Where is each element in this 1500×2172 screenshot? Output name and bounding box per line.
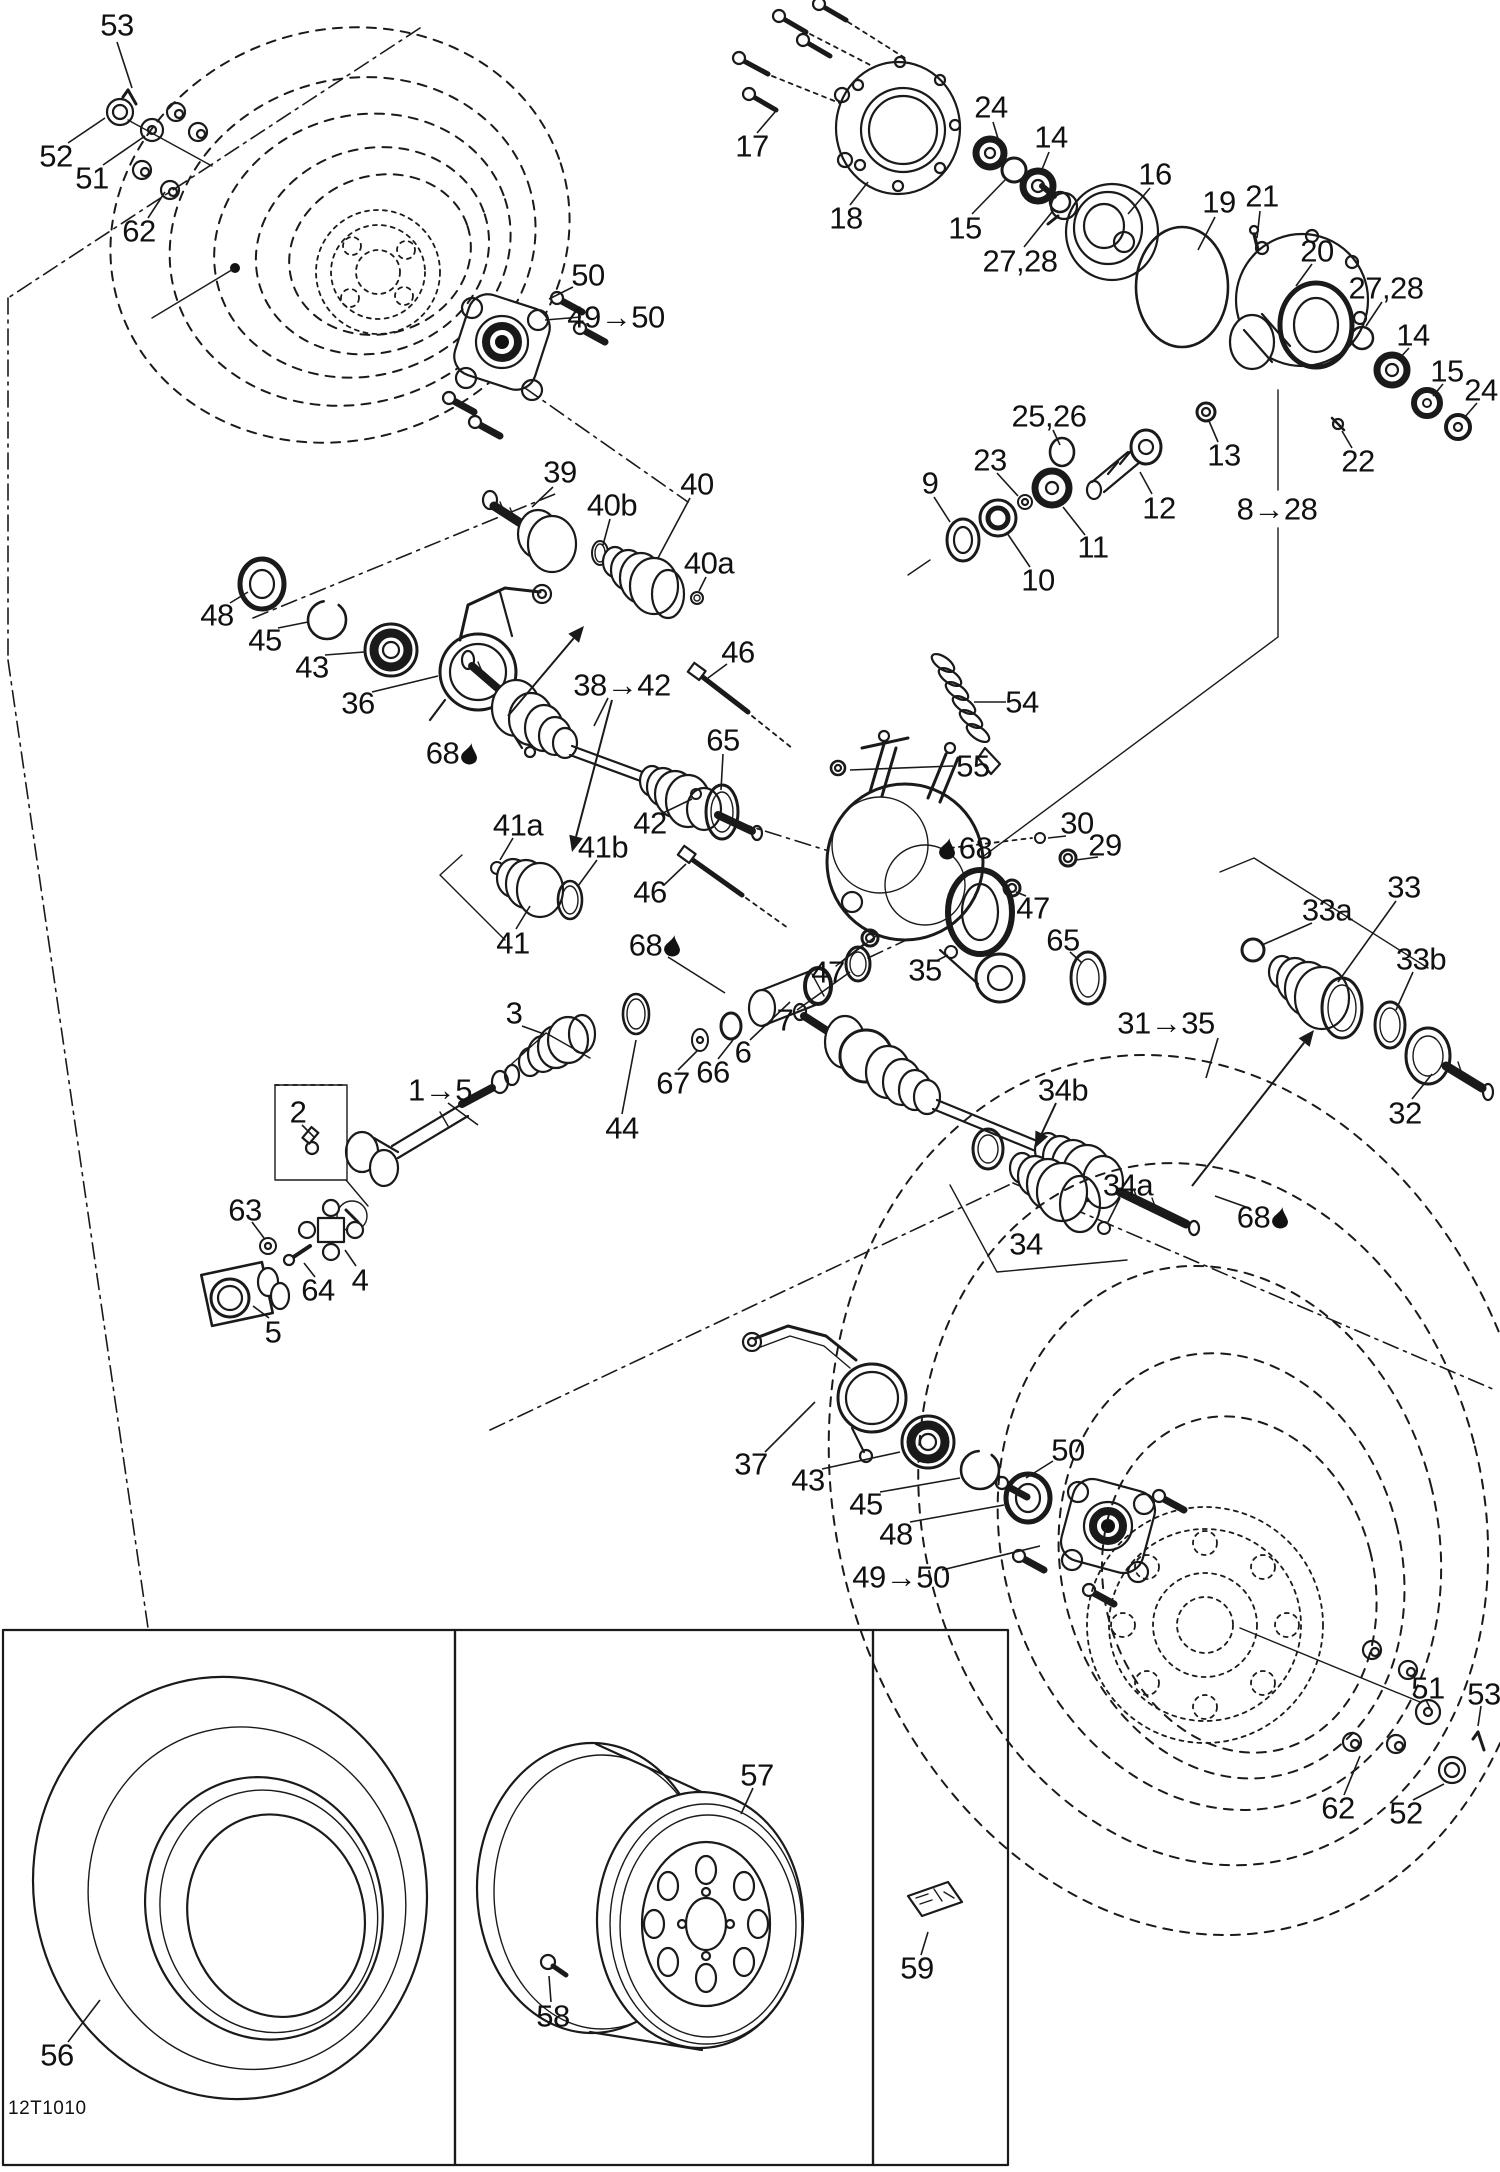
part-number-text: 52 [39, 141, 72, 172]
part-label-67: 67 [656, 1068, 689, 1099]
part-number-text: 40a [684, 548, 734, 579]
part-label-5: 5 [265, 1317, 282, 1348]
part-number-text: 43 [791, 1465, 824, 1496]
leader-line [603, 519, 610, 545]
part-label-48: 48 [200, 600, 233, 631]
part-label-34: 34 [1009, 1229, 1042, 1260]
part-label-21: 21 [1245, 181, 1278, 212]
part-number-text: 59 [900, 1953, 933, 1984]
part-label-6: 6 [735, 1037, 752, 1068]
part-number-text: 43 [295, 652, 328, 683]
leader-line [1024, 212, 1052, 247]
part-label-42: 42 [633, 808, 666, 839]
part-number-text: 16 [1138, 159, 1171, 190]
part-number-text: 11 [1077, 532, 1108, 563]
part-label-4: 4 [352, 1265, 369, 1296]
leader-line [668, 957, 725, 993]
part-label-53: 53 [1467, 1679, 1500, 1710]
supersedes-arrow-icon: → [1151, 1006, 1182, 1041]
leader-line [1198, 217, 1215, 250]
part-number-text: 68 [959, 833, 992, 864]
leader-line [1396, 972, 1413, 1010]
part-label-19: 19 [1202, 187, 1235, 218]
part-label-65: 65 [1046, 925, 1079, 956]
part-number-text: 1→5 [408, 1075, 472, 1106]
part-number-text: 36 [341, 688, 374, 719]
part-number-text: 54 [1005, 687, 1038, 718]
part-number-text: 19 [1202, 187, 1235, 218]
part-number-text: 4 [352, 1265, 369, 1296]
part-label-17: 17 [735, 131, 768, 162]
part-label-14: 14 [1034, 122, 1067, 153]
part-label-52: 52 [39, 141, 72, 172]
part-number-text: 47 [1016, 893, 1049, 924]
leader-line [1041, 152, 1049, 172]
part-label-41: 41 [496, 928, 529, 959]
part-number-text: 55 [956, 751, 989, 782]
part-label-39: 39 [543, 457, 576, 488]
leader-line [972, 180, 1005, 214]
part-label-47: 47 [1016, 893, 1049, 924]
oil-drop-icon [663, 933, 683, 957]
part-number-text: 68 [629, 930, 662, 961]
part-number-text: 64 [301, 1275, 334, 1306]
part-number-text: 56 [40, 2040, 73, 2071]
part-label-56: 56 [40, 2040, 73, 2071]
part-number-text: 21 [1245, 181, 1278, 212]
part-number-text: 24 [974, 92, 1007, 123]
part-label-10: 10 [1021, 565, 1054, 596]
part-number-text: 40 [680, 469, 713, 500]
part-label-15: 15 [948, 213, 981, 244]
part-number-text: 15 [948, 213, 981, 244]
document-code: 12T1010 [8, 2098, 87, 2120]
part-label-33a: 33a [1302, 895, 1352, 926]
part-label-8-28: 8→28 [1237, 494, 1318, 525]
part-number-text: 34b [1038, 1075, 1088, 1106]
part-label-33b: 33b [1396, 944, 1446, 975]
part-number-text: 57 [740, 1760, 773, 1791]
part-label-62: 62 [1321, 1793, 1354, 1824]
parts-diagram-page: 535251625049→50171824141527,281619212027… [0, 0, 1500, 2172]
leader-line [549, 287, 573, 299]
part-number-text: 23 [973, 445, 1006, 476]
part-number-text: 31→35 [1117, 1008, 1214, 1039]
leader-line [1026, 1461, 1053, 1478]
part-number-text: 48 [879, 1519, 912, 1550]
part-number-text: 46 [721, 637, 754, 668]
part-label-15: 15 [1430, 356, 1463, 387]
part-label-53: 53 [100, 10, 133, 41]
part-number-text: 33a [1302, 895, 1352, 926]
leader-line [532, 487, 553, 507]
part-label-55: 55 [956, 751, 989, 782]
leader-line [1206, 1038, 1218, 1078]
part-label-34a: 34a [1103, 1170, 1153, 1201]
leader-line [68, 118, 105, 143]
supersedes-arrow-icon: → [1253, 492, 1284, 527]
part-number-text: 42 [633, 808, 666, 839]
part-label-44: 44 [605, 1113, 638, 1144]
part-number-text: 53 [100, 10, 133, 41]
leader-line [765, 1402, 815, 1452]
part-number-text: 48 [200, 600, 233, 631]
supersedes-arrow-icon: → [601, 300, 632, 335]
pointer-arrow [1035, 1103, 1056, 1148]
leader-line [372, 676, 438, 692]
part-label-46: 46 [633, 877, 666, 908]
part-label-57: 57 [740, 1760, 773, 1791]
part-number-text: 8→28 [1237, 494, 1318, 525]
part-number-text: 27,28 [1348, 273, 1423, 304]
part-label-14: 14 [1396, 320, 1429, 351]
leader-line [103, 136, 145, 165]
part-label-59: 59 [900, 1953, 933, 1984]
part-label-68: 68 [940, 833, 992, 864]
pointer-arrow [1192, 1030, 1314, 1186]
part-number-text: 37 [734, 1449, 767, 1480]
part-number-text: 20 [1300, 236, 1333, 267]
part-number-text: 67 [656, 1068, 689, 1099]
part-label-12: 12 [1142, 493, 1175, 524]
leader-line [1257, 211, 1260, 238]
part-label-27-28: 27,28 [982, 246, 1057, 277]
part-label-3: 3 [506, 998, 523, 1029]
part-number-text: 35 [908, 955, 941, 986]
part-label-33: 33 [1387, 872, 1420, 903]
part-number-text: 40b [587, 490, 637, 521]
part-number-text: 68 [426, 738, 459, 769]
part-label-49-50: 49→50 [852, 1562, 949, 1593]
part-number-text: 5 [265, 1317, 282, 1348]
leader-line [278, 622, 308, 628]
oil-drop-icon [460, 741, 480, 765]
leader-line [622, 1040, 636, 1114]
leader-line [522, 1026, 544, 1034]
leader-line [721, 754, 723, 790]
part-label-45: 45 [248, 625, 281, 656]
part-number-text: 13 [1207, 440, 1240, 471]
leader-line [910, 1505, 1004, 1522]
part-label-51: 51 [1411, 1673, 1444, 1704]
part-label-52: 52 [1389, 1798, 1422, 1829]
part-number-text: 50 [1051, 1435, 1084, 1466]
part-label-48: 48 [879, 1519, 912, 1550]
part-label-40: 40 [680, 469, 713, 500]
part-label-40b: 40b [587, 490, 637, 521]
leader-line [993, 122, 1000, 145]
part-label-27-28: 27,28 [1348, 273, 1423, 304]
part-label-51: 51 [75, 163, 108, 194]
part-number-text: 66 [696, 1057, 729, 1088]
part-number-text: 3 [506, 998, 523, 1029]
part-label-63: 63 [228, 1195, 261, 1226]
part-label-24: 24 [974, 92, 1007, 123]
leader-line [664, 864, 686, 885]
part-number-text: 34 [1009, 1229, 1042, 1260]
part-number-text: 27,28 [982, 246, 1057, 277]
part-number-text: 49→50 [567, 302, 664, 333]
leader-line [1366, 302, 1382, 326]
part-label-47: 47 [811, 957, 844, 988]
part-number-text: 62 [1321, 1793, 1354, 1824]
part-label-34b: 34b [1038, 1075, 1088, 1106]
part-label-24: 24 [1464, 375, 1497, 406]
supersedes-arrow-icon: → [425, 1073, 456, 1108]
part-number-text: 22 [1341, 446, 1374, 477]
part-number-text: 41b [578, 832, 628, 863]
part-label-25-26: 25,26 [1011, 401, 1086, 432]
leader-line [880, 1478, 960, 1492]
part-number-text: 9 [922, 468, 939, 499]
part-label-68: 68 [426, 738, 478, 769]
part-label-29: 29 [1088, 830, 1121, 861]
part-number-text: 24 [1464, 375, 1497, 406]
part-label-37: 37 [734, 1449, 767, 1480]
leader-line [850, 766, 953, 770]
part-number-text: 33b [1396, 944, 1446, 975]
part-label-43: 43 [295, 652, 328, 683]
part-number-text: 7 [777, 1005, 794, 1036]
part-label-58: 58 [536, 2001, 569, 2032]
part-number-text: 10 [1021, 565, 1054, 596]
part-label-31-35: 31→35 [1117, 1008, 1214, 1039]
part-number-text: 12 [1142, 493, 1175, 524]
part-label-36: 36 [341, 688, 374, 719]
part-label-65: 65 [706, 725, 739, 756]
part-number-text: 25,26 [1011, 401, 1086, 432]
part-label-35: 35 [908, 955, 941, 986]
part-number-text: 6 [735, 1037, 752, 1068]
leader-line [68, 2000, 100, 2042]
oil-drop-icon [938, 836, 958, 860]
part-number-text: 17 [735, 131, 768, 162]
part-label-50: 50 [1051, 1435, 1084, 1466]
leader-line [822, 1452, 900, 1469]
part-number-text: 29 [1088, 830, 1121, 861]
part-number-text: 62 [122, 216, 155, 247]
supersedes-arrow-icon: → [607, 668, 638, 703]
part-label-43: 43 [791, 1465, 824, 1496]
part-label-2: 2 [290, 1097, 307, 1128]
part-label-11: 11 [1077, 532, 1108, 563]
oil-drop-icon [1271, 1205, 1291, 1229]
leader-line [117, 42, 132, 88]
part-label-13: 13 [1207, 440, 1240, 471]
part-number-text: 32 [1388, 1098, 1421, 1129]
part-label-64: 64 [301, 1275, 334, 1306]
part-label-62: 62 [122, 216, 155, 247]
part-number-text: 45 [849, 1489, 882, 1520]
leader-line [942, 1546, 1040, 1570]
leader-line [1344, 1756, 1360, 1795]
leader-line [325, 652, 364, 655]
part-number-text: 38→42 [573, 670, 670, 701]
part-label-46: 46 [721, 637, 754, 668]
part-number-text: 44 [605, 1113, 638, 1144]
part-label-22: 22 [1341, 446, 1374, 477]
part-number-text: 49→50 [852, 1562, 949, 1593]
part-number-text: 41 [496, 928, 529, 959]
supersedes-arrow-icon: → [886, 1560, 917, 1595]
part-label-16: 16 [1138, 159, 1171, 190]
leader-line [934, 497, 950, 522]
part-label-50: 50 [571, 260, 604, 291]
part-label-41b: 41b [578, 832, 628, 863]
part-number-text: 45 [248, 625, 281, 656]
part-number-text: 2 [290, 1097, 307, 1128]
part-label-20: 20 [1300, 236, 1333, 267]
part-number-text: 51 [1411, 1673, 1444, 1704]
part-number-text: 65 [1046, 925, 1079, 956]
part-number-text: 63 [228, 1195, 261, 1226]
part-number-text: 33 [1387, 872, 1420, 903]
part-label-49-50: 49→50 [567, 302, 664, 333]
part-label-40a: 40a [684, 548, 734, 579]
part-number-text: 15 [1430, 356, 1463, 387]
part-number-text: 34a [1103, 1170, 1153, 1201]
leader-lines-layer [0, 0, 1500, 2172]
part-number-text: 65 [706, 725, 739, 756]
part-number-text: 47 [811, 957, 844, 988]
part-number-text: 68 [1237, 1202, 1270, 1233]
part-number-text: 14 [1034, 122, 1067, 153]
part-number-text: 50 [571, 260, 604, 291]
part-label-18: 18 [829, 203, 862, 234]
part-number-text: 51 [75, 163, 108, 194]
leader-line [663, 799, 692, 813]
part-label-68: 68 [629, 930, 681, 961]
part-label-9: 9 [922, 468, 939, 499]
part-label-41a: 41a [493, 810, 543, 841]
part-number-text: 46 [633, 877, 666, 908]
part-label-45: 45 [849, 1489, 882, 1520]
part-number-text: 58 [536, 2001, 569, 2032]
part-label-7: 7 [777, 1005, 794, 1036]
leader-line [1128, 188, 1150, 214]
part-number-text: 52 [1389, 1798, 1422, 1829]
part-label-54: 54 [1005, 687, 1038, 718]
part-number-text: 14 [1396, 320, 1429, 351]
part-number-text: 53 [1467, 1679, 1500, 1710]
part-number-text: 18 [829, 203, 862, 234]
part-number-text: 41a [493, 810, 543, 841]
part-label-23: 23 [973, 445, 1006, 476]
part-number-text: 39 [543, 457, 576, 488]
part-label-38-42: 38→42 [573, 670, 670, 701]
part-label-68: 68 [1237, 1202, 1289, 1233]
part-label-32: 32 [1388, 1098, 1421, 1129]
part-label-1-5: 1→5 [408, 1075, 472, 1106]
part-label-66: 66 [696, 1057, 729, 1088]
